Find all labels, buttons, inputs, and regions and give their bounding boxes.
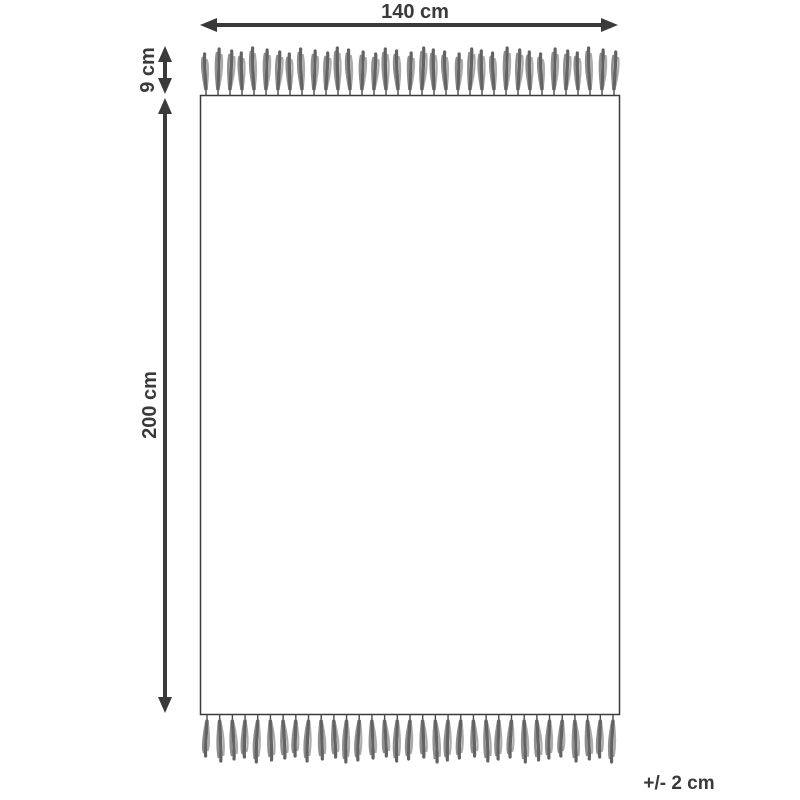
tassel-strand <box>301 49 302 89</box>
tassel-strand <box>459 721 460 758</box>
height-arrow-down-head-icon <box>158 697 172 713</box>
tassel-strand <box>244 721 245 757</box>
tassel-strand <box>385 49 386 89</box>
tassel-strand <box>205 54 206 89</box>
tassel-strand <box>266 50 267 89</box>
tassel-strand <box>486 721 488 761</box>
tassel-strand <box>397 721 398 761</box>
tassel-strand <box>506 48 507 89</box>
width-arrow: 140 cm <box>200 1 618 32</box>
tassel-strand <box>524 721 525 762</box>
height-label: 200 cm <box>139 371 161 439</box>
tassel-strand <box>358 721 359 760</box>
tassel-strand <box>470 49 472 89</box>
tassel-strand <box>435 721 437 762</box>
tassel-strand <box>493 53 494 89</box>
rug-dimension-diagram: 140 cm 9 cm 200 cm +/- 2 cm <box>0 0 800 800</box>
tassel-strand <box>295 721 296 756</box>
tassel-strand <box>529 52 530 89</box>
bottom-fringe <box>203 715 615 762</box>
fringe-height-arrow: 9 cm <box>137 46 172 94</box>
fringe-arrow-up-head-icon <box>158 46 172 62</box>
tassel-strand <box>349 50 350 89</box>
tassel-strand <box>422 48 424 89</box>
tassel-strand <box>614 52 616 89</box>
tassel-strand <box>566 51 568 89</box>
tassel-strand <box>409 721 410 759</box>
tassel-strand <box>447 721 448 760</box>
top-fringe <box>202 48 618 95</box>
tassel-strand <box>510 721 511 757</box>
tassel-strand <box>410 53 411 89</box>
tassel-strand <box>589 48 590 89</box>
tassel-strand <box>397 51 398 89</box>
tassel-strand <box>518 50 520 89</box>
tassel-strand <box>588 721 590 759</box>
tassel-strand <box>270 721 271 760</box>
tassel-strand <box>600 721 601 757</box>
tassel-strand <box>283 721 285 758</box>
tassel-strand <box>372 721 373 758</box>
tassel-strand <box>307 721 308 761</box>
tolerance-label: +/- 2 cm <box>643 773 714 794</box>
tassel-strand <box>458 54 459 89</box>
height-arrow: 200 cm <box>139 98 172 713</box>
tassel-strand <box>220 721 221 761</box>
tassel-strand <box>230 51 232 89</box>
tassel-strand <box>445 52 446 89</box>
rug-outline <box>201 96 620 715</box>
tassel-strand <box>289 54 290 89</box>
tassel-strand <box>232 721 234 759</box>
tassel-strand <box>362 52 363 89</box>
tassel-strand <box>602 50 603 89</box>
tassel-strand <box>575 721 576 761</box>
fringe-arrow-down-head-icon <box>158 78 172 94</box>
tassel-strand <box>577 53 578 89</box>
tassel-strand <box>561 721 562 756</box>
tassel-strand <box>554 49 555 89</box>
tassel-strand <box>326 53 328 89</box>
tassel-strand <box>241 53 242 89</box>
width-arrow-left-head-icon <box>200 18 217 32</box>
tassel-strand <box>481 51 482 89</box>
width-label: 140 cm <box>381 1 449 23</box>
tassel-strand <box>314 51 315 89</box>
tassel-strand <box>374 54 376 89</box>
tassel-strand <box>433 50 434 89</box>
tassel-strand <box>385 721 387 756</box>
diagram-svg: 140 cm 9 cm 200 cm +/- 2 cm <box>0 0 800 800</box>
tassel-strand <box>612 721 613 762</box>
tassel-strand <box>218 49 219 89</box>
tassel-strand <box>498 721 499 759</box>
tassel-strand <box>321 721 322 759</box>
tassel-strand <box>541 54 542 89</box>
tassel-strand <box>549 721 550 758</box>
tassel-strand <box>334 721 336 757</box>
tassel-strand <box>278 52 280 89</box>
height-arrow-up-head-icon <box>158 98 172 114</box>
fringe-label: 9 cm <box>137 47 159 93</box>
tassel-strand <box>473 721 474 756</box>
tassel-strand <box>423 721 424 757</box>
tassel-strand <box>256 721 257 762</box>
width-arrow-right-head-icon <box>601 18 618 32</box>
tassel-strand <box>253 48 254 89</box>
tassel-strand <box>346 721 347 762</box>
tassel-strand <box>206 721 207 756</box>
tassel-strand <box>537 721 539 760</box>
tassel-strand <box>337 48 338 89</box>
